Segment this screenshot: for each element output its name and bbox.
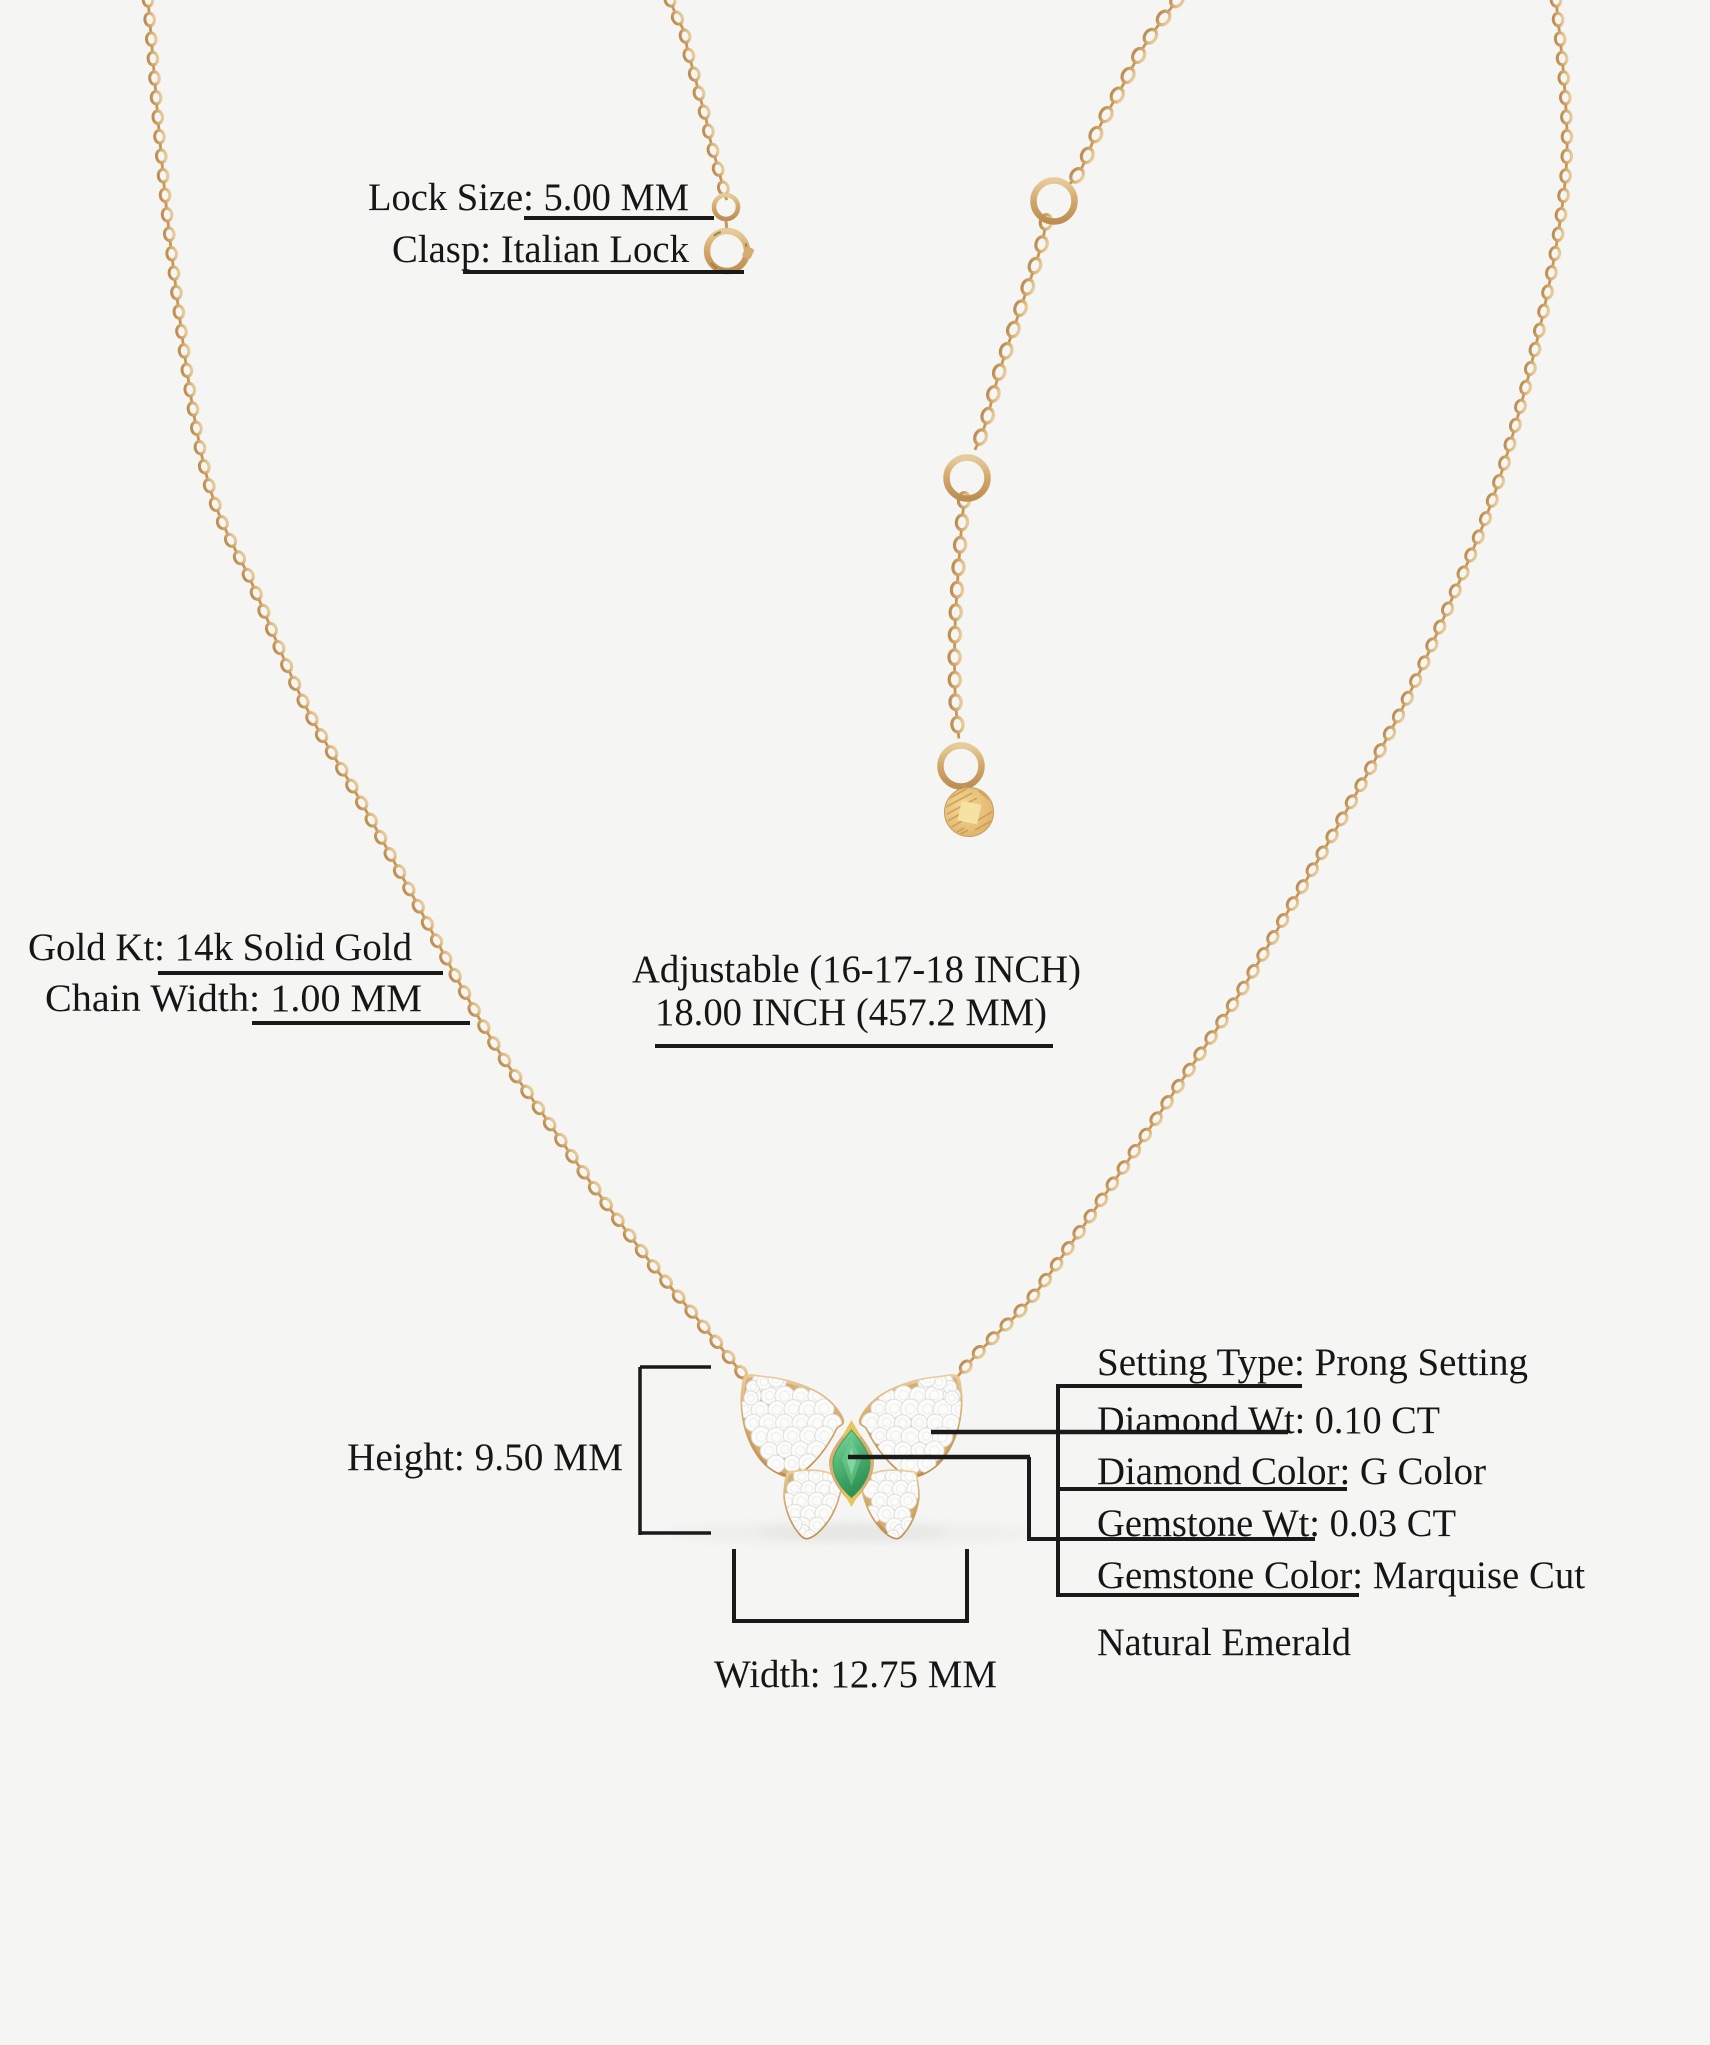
svg-text:Diamond Wt: 0.10 CT: Diamond Wt: 0.10 CT — [1097, 1399, 1440, 1442]
svg-text:Width: 12.75 MM: Width: 12.75 MM — [714, 1653, 997, 1696]
svg-text:Clasp: Italian Lock: Clasp: Italian Lock — [392, 228, 690, 271]
svg-text:Setting Type: Prong Setting: Setting Type: Prong Setting — [1097, 1341, 1528, 1384]
svg-text:Gemstone Color: Marquise Cut: Gemstone Color: Marquise Cut — [1097, 1554, 1585, 1597]
svg-text:18.00 INCH (457.2 MM): 18.00 INCH (457.2 MM) — [655, 991, 1047, 1034]
svg-text:Gemstone Wt: 0.03 CT: Gemstone Wt: 0.03 CT — [1097, 1502, 1456, 1545]
svg-text:Height: 9.50 MM: Height: 9.50 MM — [347, 1436, 623, 1479]
svg-text:Diamond Color: G Color: Diamond Color: G Color — [1097, 1450, 1486, 1493]
svg-text:Lock Size: 5.00 MM: Lock Size: 5.00 MM — [368, 176, 689, 219]
svg-text:Natural Emerald: Natural Emerald — [1097, 1621, 1351, 1664]
svg-text:Adjustable (16-17-18 INCH): Adjustable (16-17-18 INCH) — [632, 948, 1081, 991]
svg-text:Chain Width: 1.00 MM: Chain Width: 1.00 MM — [45, 977, 422, 1020]
svg-text:Gold Kt: 14k Solid Gold: Gold Kt: 14k Solid Gold — [28, 926, 412, 969]
